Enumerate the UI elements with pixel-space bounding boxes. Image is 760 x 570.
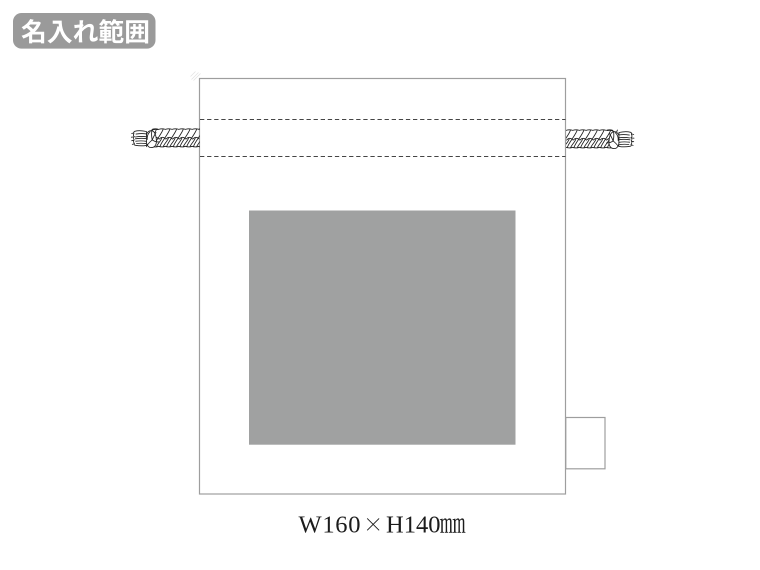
svg-text:H140: H140 (386, 512, 440, 539)
svg-text:W160: W160 (299, 512, 362, 539)
